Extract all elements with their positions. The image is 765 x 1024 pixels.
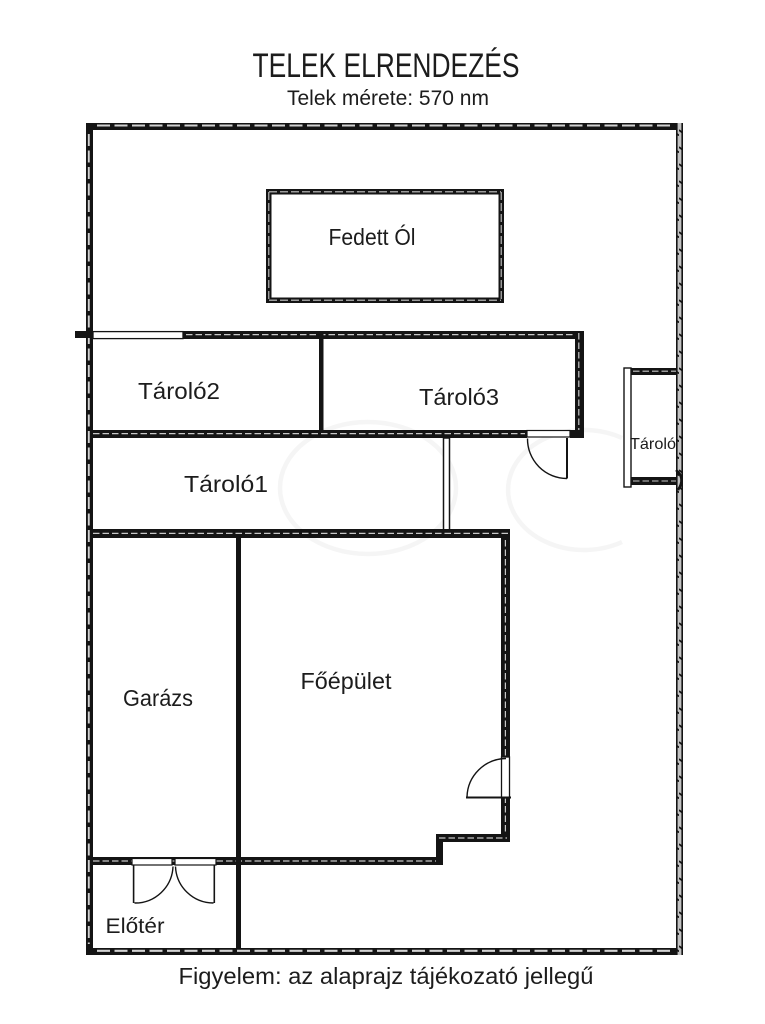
svg-text:TELEK ELRENDEZÉS: TELEK ELRENDEZÉS bbox=[253, 47, 520, 85]
svg-text:Tároló1: Tároló1 bbox=[184, 471, 268, 497]
svg-text:Főépület: Főépület bbox=[301, 668, 393, 694]
svg-text:Figyelem: az alaprajz tájékoza: Figyelem: az alaprajz tájékozató jellegű bbox=[179, 963, 594, 989]
svg-text:Garázs: Garázs bbox=[123, 685, 193, 711]
svg-text:Fedett Ól: Fedett Ól bbox=[329, 224, 416, 250]
svg-text:Tároló2: Tároló2 bbox=[138, 378, 220, 404]
svg-text:Előtér: Előtér bbox=[106, 915, 165, 938]
svg-text:Tároló3: Tároló3 bbox=[419, 384, 499, 410]
svg-text:Tároló: Tároló bbox=[630, 436, 676, 453]
svg-text:Telek mérete: 570 nm: Telek mérete: 570 nm bbox=[287, 87, 489, 110]
